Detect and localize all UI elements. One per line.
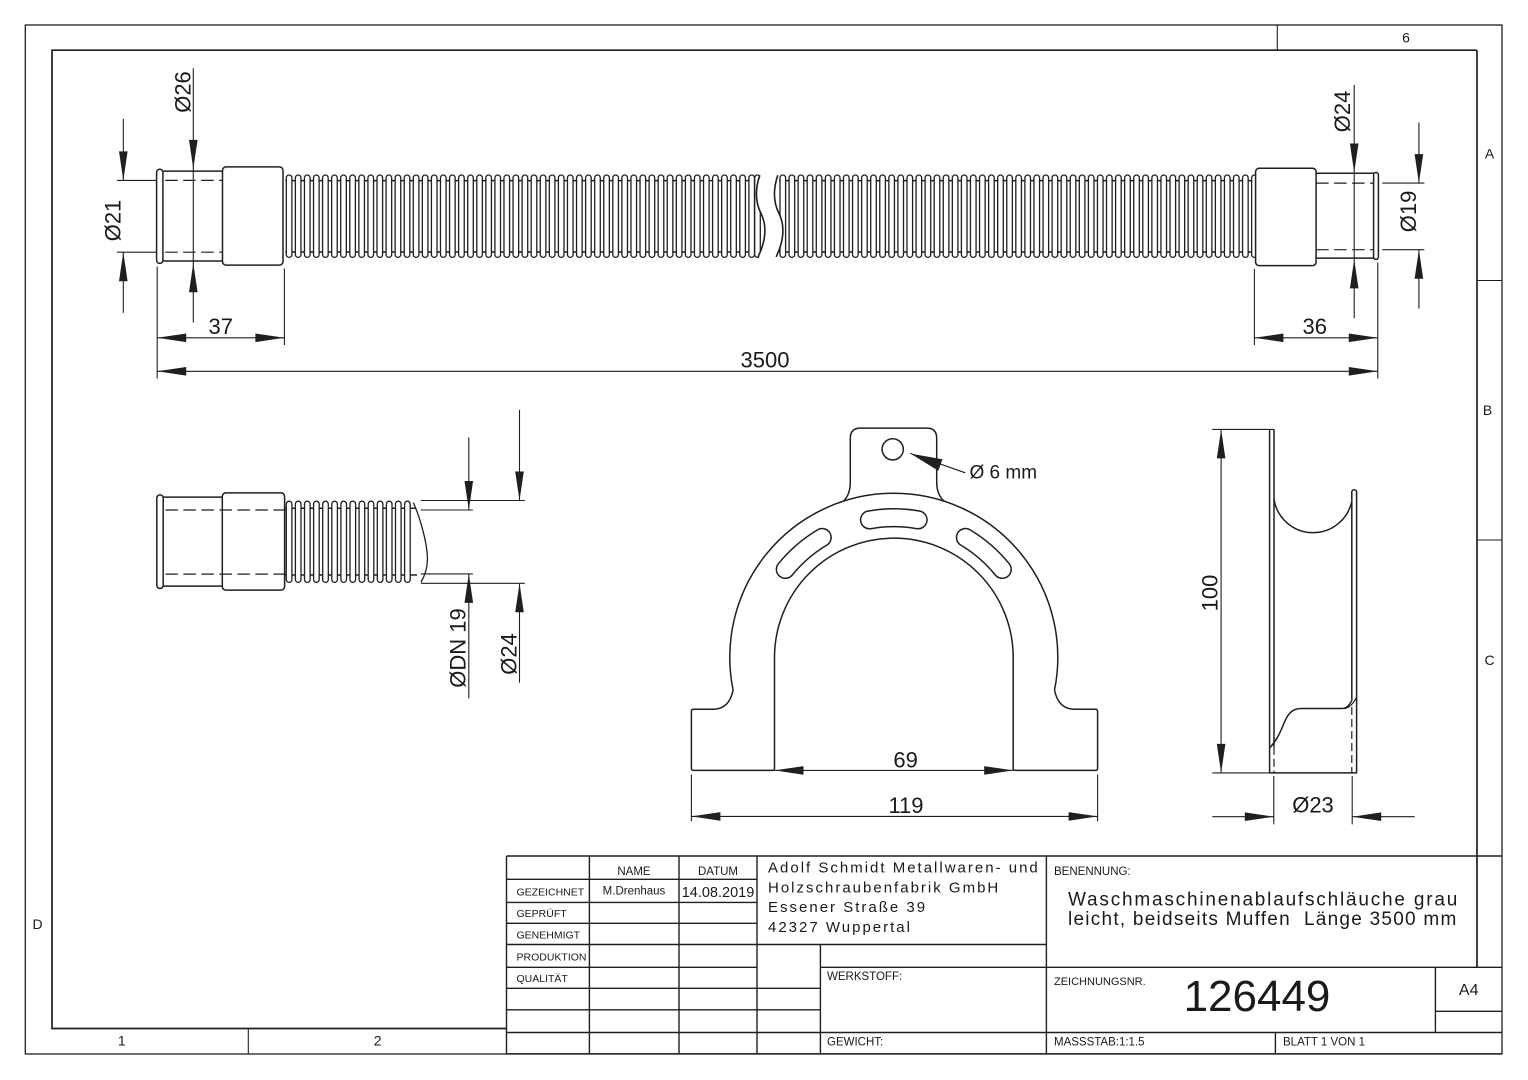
svg-text:ØDN 19: ØDN 19 bbox=[446, 608, 471, 687]
svg-text:D: D bbox=[33, 916, 43, 932]
svg-text:Ø19: Ø19 bbox=[1396, 191, 1421, 233]
svg-text:100: 100 bbox=[1198, 575, 1223, 612]
svg-text:PRODUKTION: PRODUKTION bbox=[517, 951, 587, 963]
svg-text:69: 69 bbox=[893, 748, 917, 773]
svg-text:A4: A4 bbox=[1459, 982, 1479, 999]
svg-text:Ø23: Ø23 bbox=[1292, 793, 1334, 818]
svg-text:14.08.2019: 14.08.2019 bbox=[682, 885, 755, 901]
svg-text:leicht, beidseits Muffen Läng: leicht, beidseits Muffen Länge 3500 mm bbox=[1068, 909, 1458, 930]
svg-text:BENENNUNG:: BENENNUNG: bbox=[1054, 866, 1131, 878]
svg-text:GEZEICHNET: GEZEICHNET bbox=[517, 887, 585, 899]
svg-text:ZEICHNUNGSNR.: ZEICHNUNGSNR. bbox=[1054, 976, 1146, 988]
svg-text:WERKSTOFF:: WERKSTOFF: bbox=[827, 971, 902, 983]
svg-text:Ø26: Ø26 bbox=[171, 71, 196, 113]
svg-text:2: 2 bbox=[374, 1033, 382, 1049]
svg-text:Holzschraubenfabrik GmbH: Holzschraubenfabrik GmbH bbox=[768, 879, 1000, 896]
svg-text:NAME: NAME bbox=[617, 866, 651, 878]
svg-text:Ø24: Ø24 bbox=[1330, 91, 1355, 133]
svg-text:6: 6 bbox=[1402, 30, 1410, 46]
svg-text:M.Drenhaus: M.Drenhaus bbox=[603, 886, 666, 898]
svg-text:37: 37 bbox=[209, 314, 233, 339]
svg-text:GEPRÜFT: GEPRÜFT bbox=[517, 908, 568, 920]
svg-text:1: 1 bbox=[118, 1033, 126, 1049]
svg-text:A: A bbox=[1485, 146, 1495, 162]
svg-text:Essener Straße 39: Essener Straße 39 bbox=[768, 899, 927, 916]
svg-text:MASSSTAB:1:1.5: MASSSTAB:1:1.5 bbox=[1054, 1037, 1145, 1049]
svg-text:Waschmaschinenablaufschläuche: Waschmaschinenablaufschläuche grau bbox=[1068, 889, 1459, 910]
svg-text:126449: 126449 bbox=[1184, 972, 1331, 1021]
svg-text:119: 119 bbox=[888, 793, 923, 818]
svg-text:GENEHMIGT: GENEHMIGT bbox=[517, 930, 581, 942]
svg-text:Ø21: Ø21 bbox=[101, 200, 126, 242]
svg-text:C: C bbox=[1484, 652, 1494, 668]
svg-text:GEWICHT:: GEWICHT: bbox=[827, 1037, 883, 1049]
svg-text:3500: 3500 bbox=[741, 348, 790, 373]
svg-text:Adolf Schmidt Metallwaren- und: Adolf Schmidt Metallwaren- und bbox=[768, 860, 1040, 877]
svg-text:QUALITÄT: QUALITÄT bbox=[517, 973, 569, 985]
svg-text:BLATT 1 VON 1: BLATT 1 VON 1 bbox=[1283, 1037, 1365, 1049]
svg-text:Ø 6 mm: Ø 6 mm bbox=[970, 463, 1038, 484]
svg-text:DATUM: DATUM bbox=[698, 866, 738, 878]
svg-text:36: 36 bbox=[1302, 314, 1326, 339]
svg-text:Ø24: Ø24 bbox=[496, 633, 521, 675]
svg-text:B: B bbox=[1483, 402, 1492, 418]
svg-text:42327 Wuppertal: 42327 Wuppertal bbox=[768, 919, 912, 936]
